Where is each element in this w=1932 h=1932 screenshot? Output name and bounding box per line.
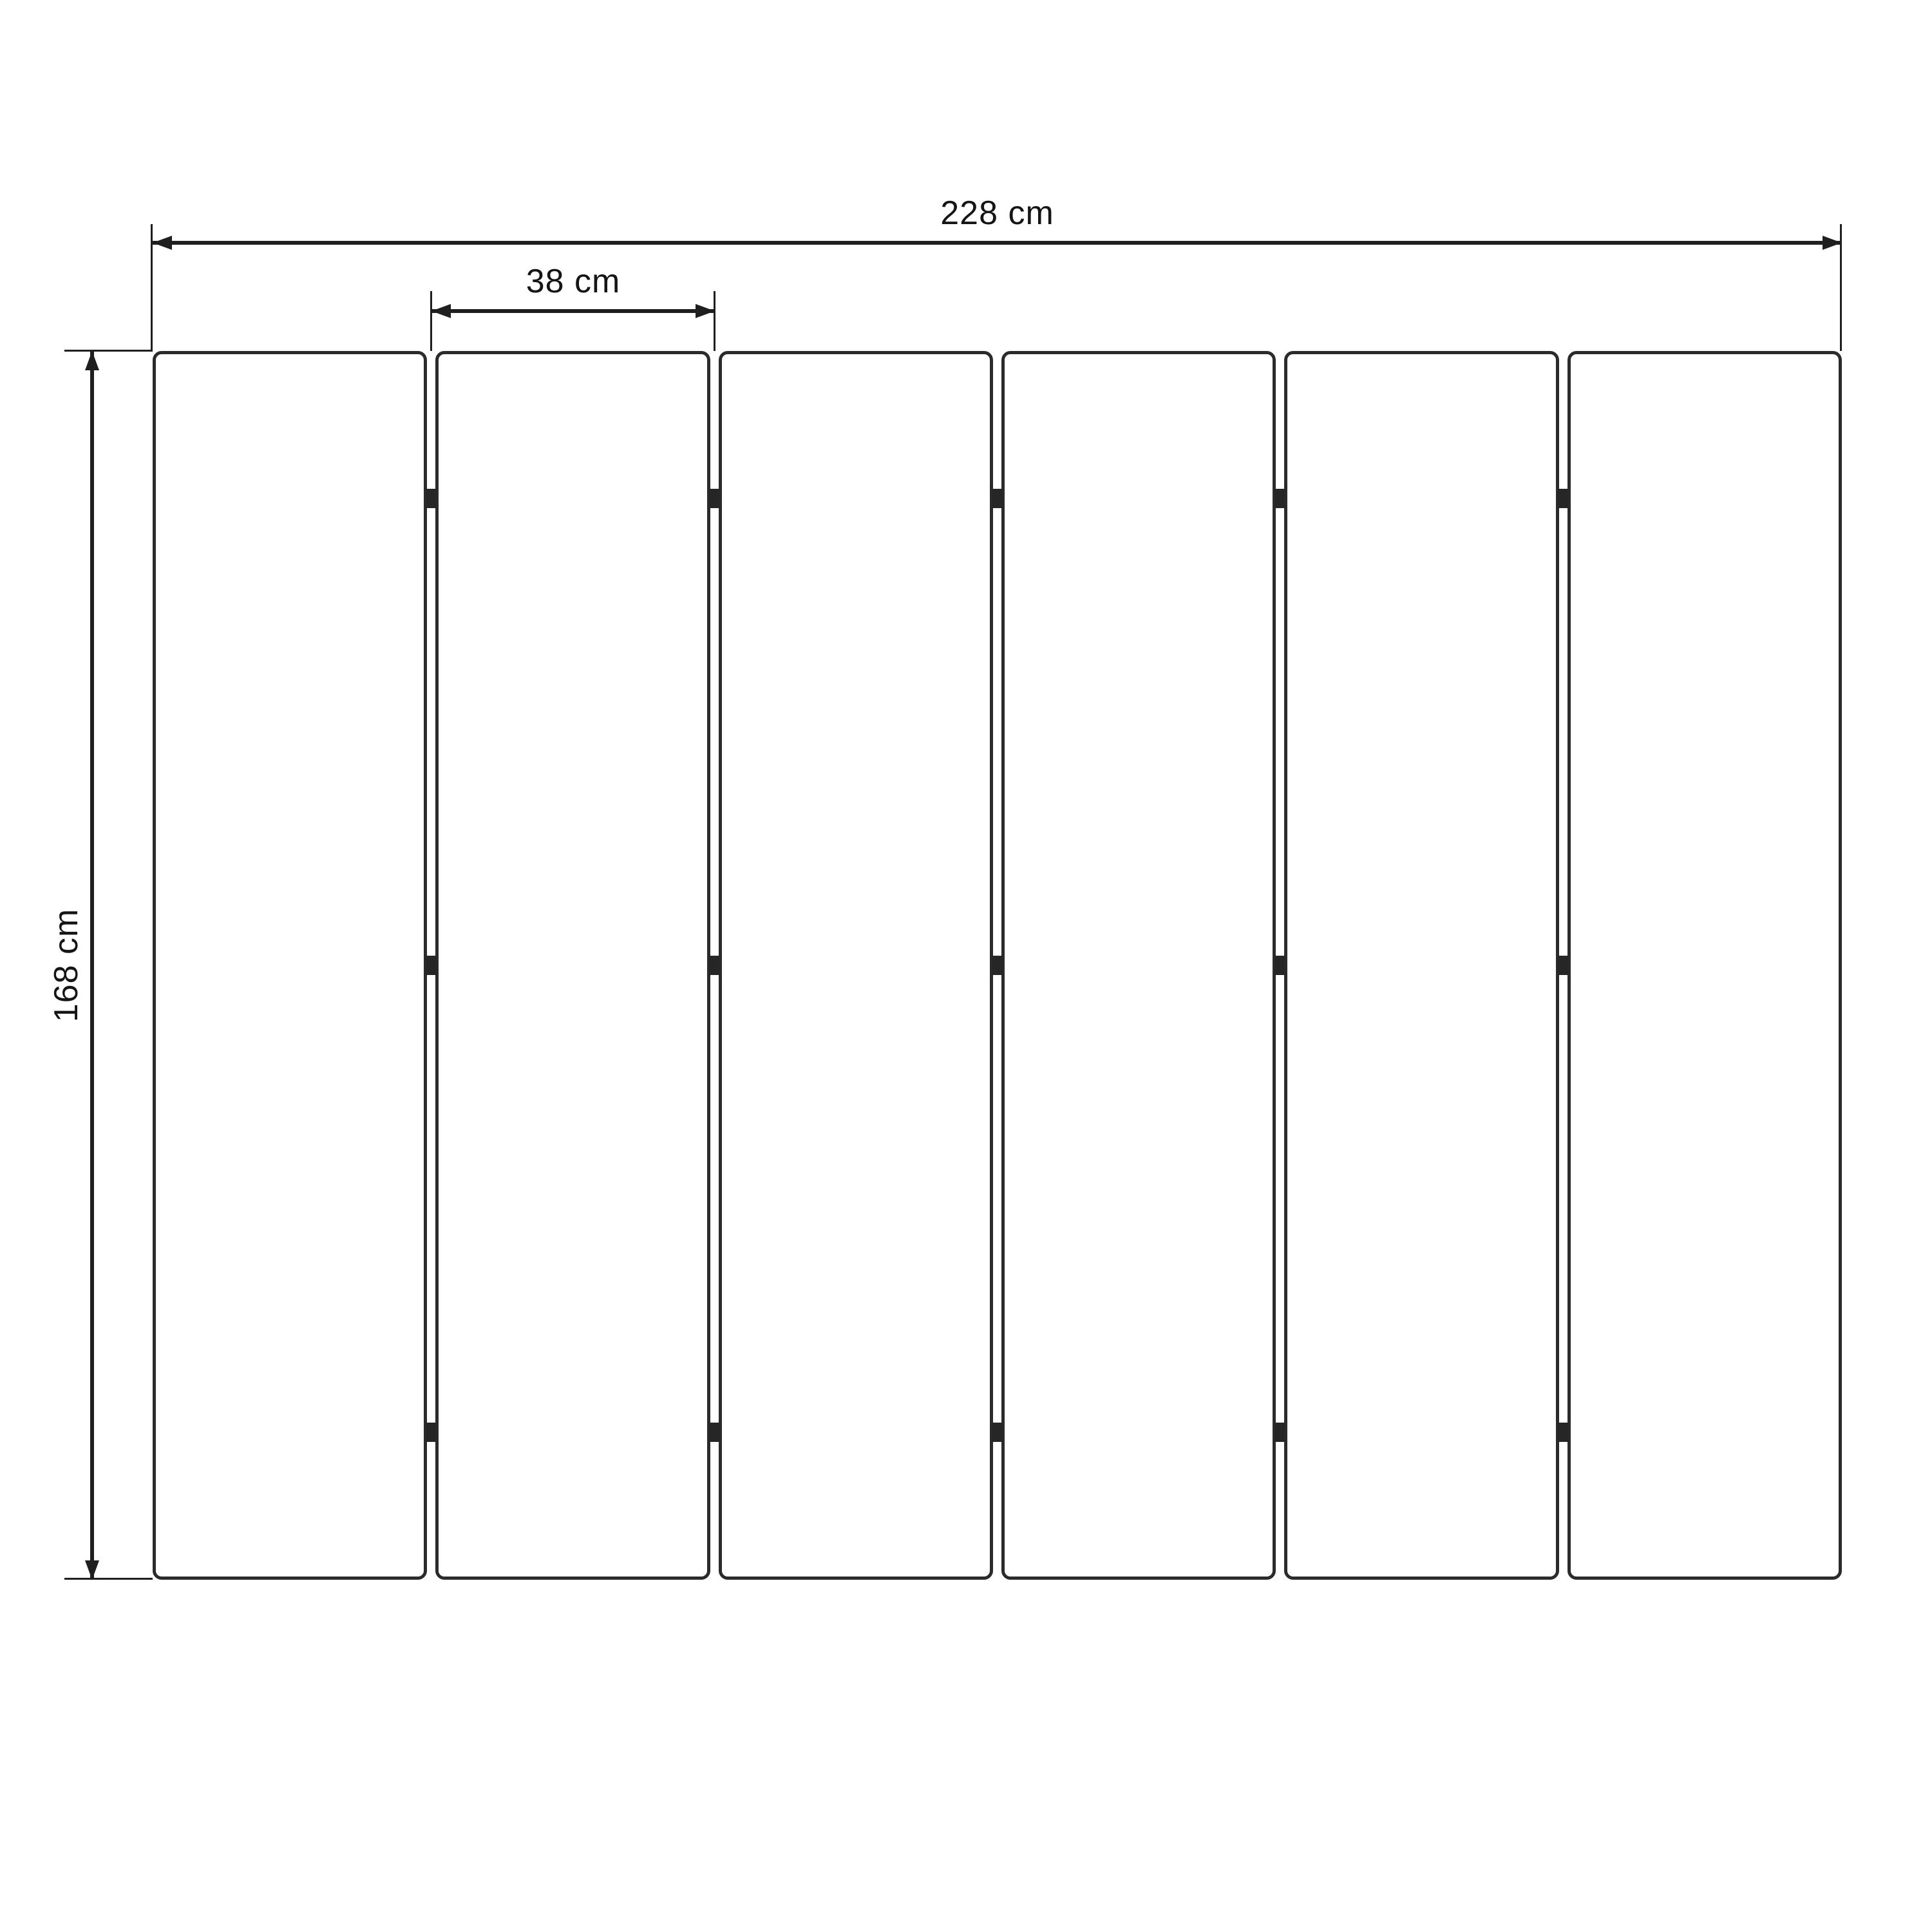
extension-line-left (151, 224, 153, 351)
hinge-icon (1558, 489, 1569, 508)
panel-width-label: 38 cm (431, 263, 715, 301)
panel-2 (435, 351, 710, 1580)
hinge-icon (1558, 956, 1569, 975)
extension-line-left (430, 291, 432, 351)
hinge-icon (1274, 956, 1285, 975)
total-width-dimension-line (153, 241, 1842, 245)
hinge-icon (426, 1423, 437, 1442)
hinge-icon (426, 489, 437, 508)
arrowhead-left-icon (431, 304, 451, 318)
hinge-icon (1274, 1423, 1285, 1442)
extension-line-bottom (64, 1578, 153, 1580)
dimension-diagram: 228 cm 38 cm 168 cm (0, 0, 1932, 1932)
height-label: 168 cm (48, 909, 86, 1023)
arrowhead-right-icon (696, 304, 715, 318)
hinge-icon (709, 956, 720, 975)
panel-5 (1284, 351, 1558, 1580)
panel-1 (153, 351, 427, 1580)
panel-6 (1567, 351, 1842, 1580)
height-dimension-line (90, 351, 94, 1580)
total-width-label: 228 cm (153, 194, 1842, 233)
panel-4 (1001, 351, 1276, 1580)
extension-line-right (714, 291, 715, 351)
arrowhead-right-icon (1823, 236, 1842, 250)
arrowhead-down-icon (85, 1560, 99, 1580)
hinge-icon (1274, 489, 1285, 508)
hinge-icon (992, 956, 1003, 975)
panel-row (153, 351, 1842, 1580)
extension-line-right (1840, 224, 1842, 351)
hinge-icon (709, 489, 720, 508)
arrowhead-left-icon (153, 236, 172, 250)
hinge-icon (992, 489, 1003, 508)
arrowhead-up-icon (85, 351, 99, 370)
hinge-icon (709, 1423, 720, 1442)
panel-3 (719, 351, 993, 1580)
extension-line-top (64, 350, 153, 352)
hinge-icon (426, 956, 437, 975)
panel-width-dimension-line (431, 309, 715, 313)
hinge-icon (992, 1423, 1003, 1442)
hinge-icon (1558, 1423, 1569, 1442)
